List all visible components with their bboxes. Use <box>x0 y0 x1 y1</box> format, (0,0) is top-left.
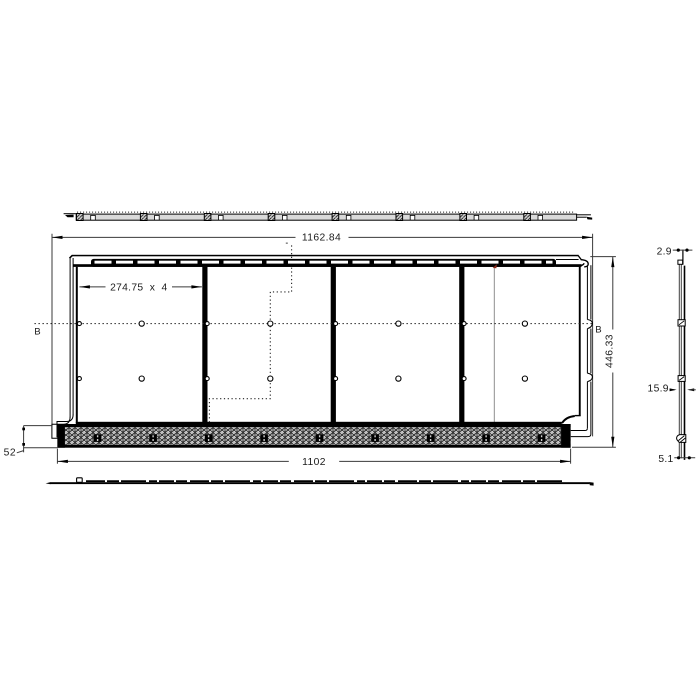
svg-text:446.33: 446.33 <box>604 334 615 368</box>
svg-text:B: B <box>595 325 601 336</box>
svg-text:2.9: 2.9 <box>657 246 672 257</box>
svg-text:B: B <box>34 327 40 338</box>
svg-text:1162.84: 1162.84 <box>302 233 341 244</box>
svg-text:52: 52 <box>4 447 16 458</box>
svg-text:15.9: 15.9 <box>648 384 669 395</box>
svg-text:5.1: 5.1 <box>658 454 673 465</box>
svg-text:274.75 x 4: 274.75 x 4 <box>110 282 167 293</box>
svg-text:1102: 1102 <box>302 457 326 468</box>
